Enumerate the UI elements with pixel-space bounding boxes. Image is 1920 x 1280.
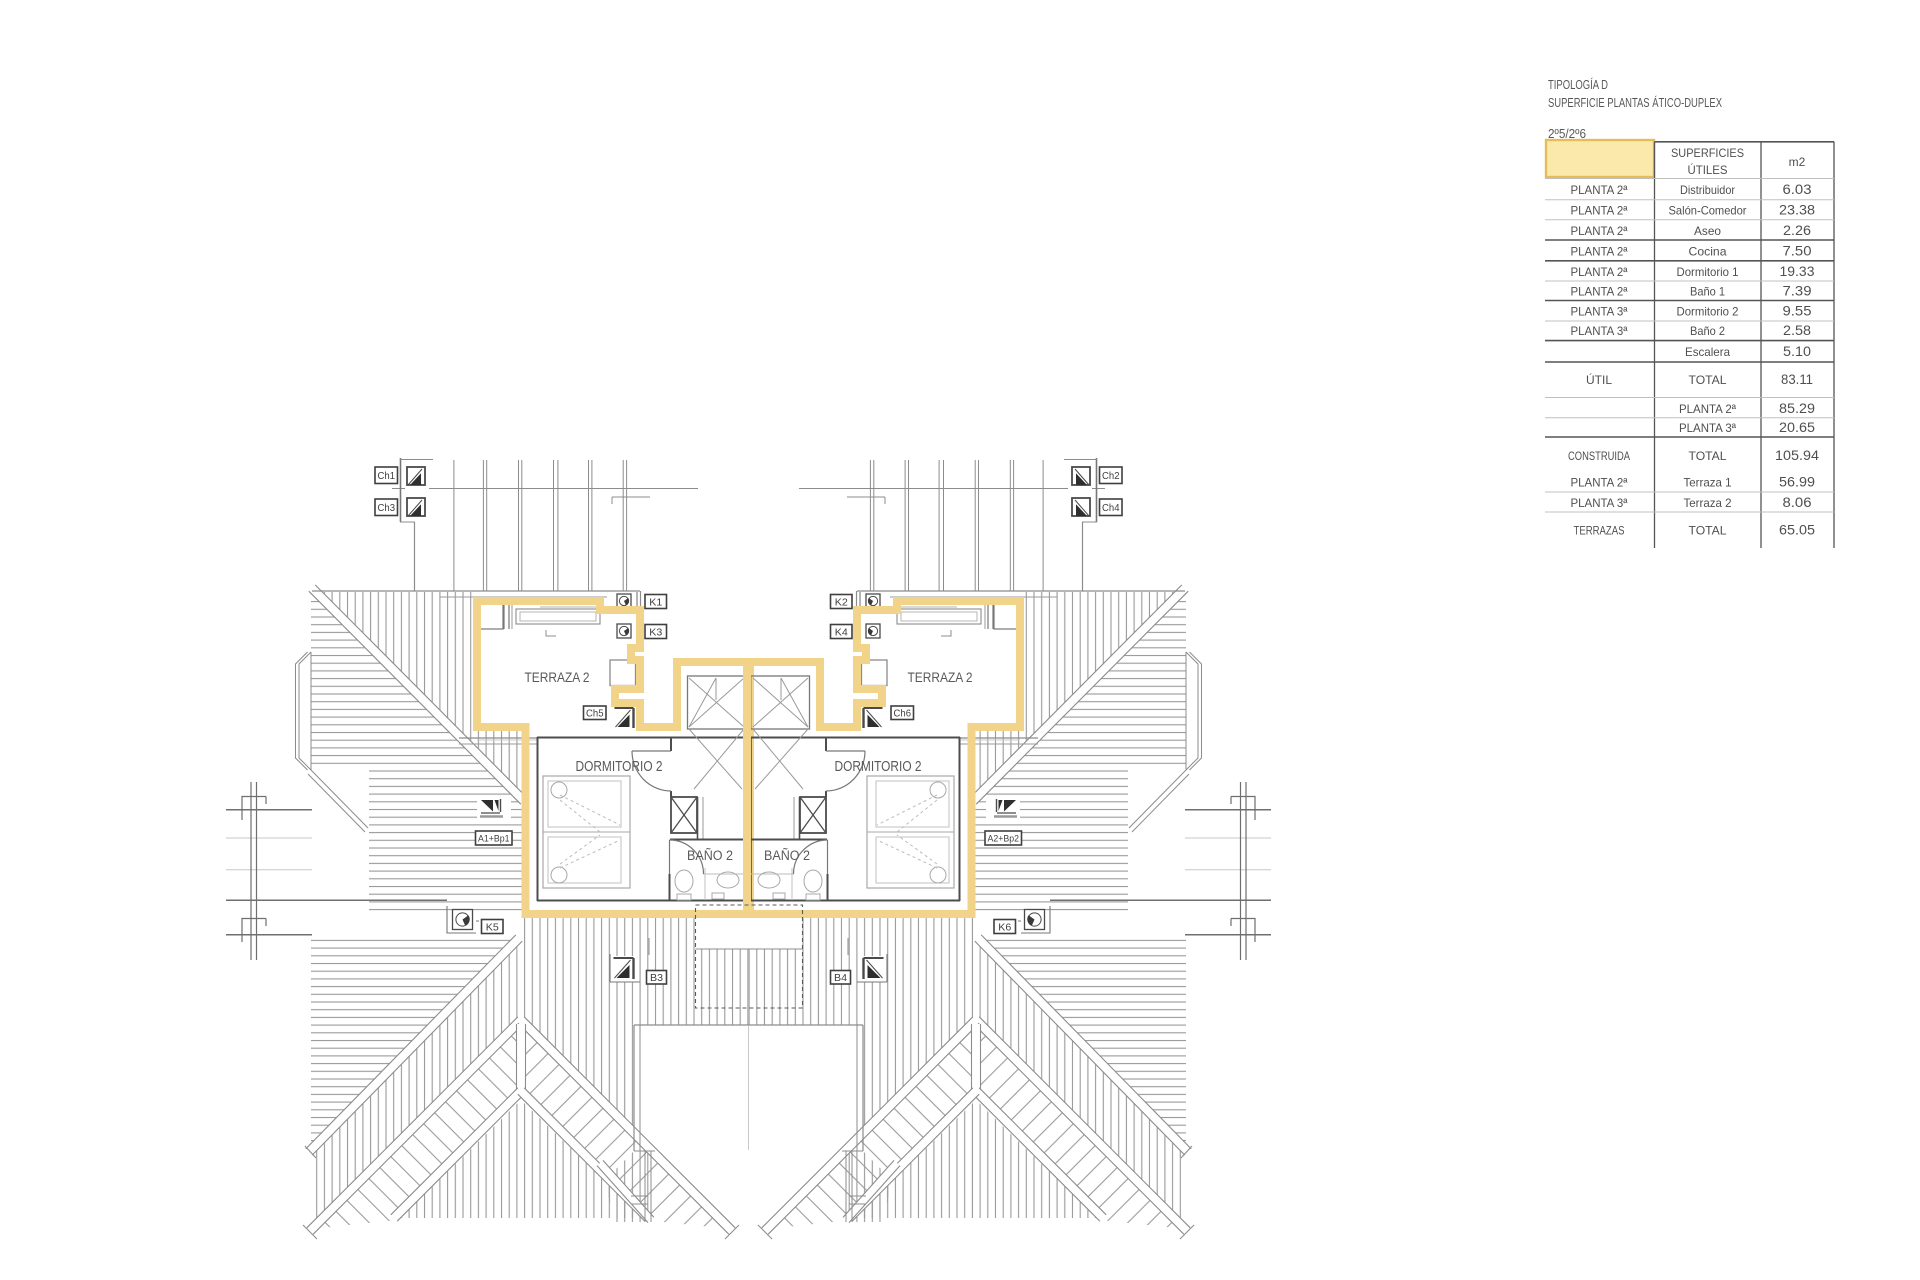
svg-text:Ch5: Ch5 — [586, 708, 604, 720]
svg-text:TERRAZA 2: TERRAZA 2 — [908, 669, 973, 685]
svg-text:PLANTA 2ª: PLANTA 2ª — [1571, 244, 1629, 258]
svg-text:DORMITORIO 2: DORMITORIO 2 — [576, 759, 663, 775]
svg-text:2.58: 2.58 — [1783, 323, 1811, 338]
svg-text:PLANTA 2ª: PLANTA 2ª — [1571, 475, 1629, 489]
svg-text:m2: m2 — [1789, 155, 1806, 169]
svg-text:105.94: 105.94 — [1775, 448, 1820, 463]
svg-text:PLANTA 2ª: PLANTA 2ª — [1679, 402, 1737, 416]
svg-text:Ch3: Ch3 — [378, 502, 396, 514]
svg-text:TOTAL: TOTAL — [1689, 373, 1727, 387]
svg-text:ÚTILES: ÚTILES — [1688, 162, 1728, 177]
svg-text:TIPOLOGÍA D: TIPOLOGÍA D — [1548, 77, 1608, 92]
svg-text:TERRAZAS: TERRAZAS — [1574, 523, 1625, 537]
svg-text:ÚTIL: ÚTIL — [1586, 372, 1612, 387]
svg-text:20.65: 20.65 — [1779, 420, 1815, 435]
svg-text:Dormitorio 1: Dormitorio 1 — [1677, 265, 1739, 279]
svg-text:Ch1: Ch1 — [378, 470, 396, 482]
svg-text:K1: K1 — [649, 596, 662, 608]
svg-text:SUPERFICIE PLANTAS ÁTICO-DUPLE: SUPERFICIE PLANTAS ÁTICO-DUPLEX — [1548, 95, 1722, 110]
svg-text:K3: K3 — [649, 626, 662, 638]
svg-text:Cocina: Cocina — [1689, 244, 1727, 258]
svg-text:Aseo: Aseo — [1694, 224, 1721, 238]
svg-text:Escalera: Escalera — [1685, 345, 1730, 359]
svg-text:Salón-Comedor: Salón-Comedor — [1669, 203, 1747, 217]
svg-text:K4: K4 — [835, 626, 848, 638]
svg-text:PLANTA 3ª: PLANTA 3ª — [1571, 496, 1629, 510]
svg-text:5.10: 5.10 — [1783, 344, 1811, 359]
svg-text:85.29: 85.29 — [1779, 401, 1815, 416]
svg-text:Dormitorio 2: Dormitorio 2 — [1677, 304, 1739, 318]
svg-text:65.05: 65.05 — [1779, 523, 1815, 538]
svg-text:PLANTA 2ª: PLANTA 2ª — [1571, 183, 1629, 197]
svg-text:6.03: 6.03 — [1783, 182, 1812, 197]
svg-text:TOTAL: TOTAL — [1689, 449, 1727, 463]
svg-text:SUPERFICIES: SUPERFICIES — [1671, 146, 1744, 160]
svg-text:56.99: 56.99 — [1779, 475, 1815, 490]
svg-text:K2: K2 — [835, 596, 848, 608]
svg-text:2.26: 2.26 — [1783, 223, 1811, 238]
svg-text:Ch2: Ch2 — [1102, 470, 1120, 482]
svg-text:Ch6: Ch6 — [894, 708, 912, 720]
svg-text:23.38: 23.38 — [1779, 203, 1815, 218]
svg-text:PLANTA 2ª: PLANTA 2ª — [1571, 284, 1629, 298]
svg-text:8.06: 8.06 — [1783, 495, 1812, 510]
svg-text:7.39: 7.39 — [1783, 284, 1812, 299]
svg-text:PLANTA 3ª: PLANTA 3ª — [1571, 324, 1629, 338]
svg-text:PLANTA 2ª: PLANTA 2ª — [1571, 265, 1629, 279]
svg-text:K6: K6 — [998, 921, 1011, 933]
svg-text:Baño 1: Baño 1 — [1690, 284, 1725, 298]
svg-text:A2+Bp2: A2+Bp2 — [988, 833, 1020, 844]
svg-text:Terraza 1: Terraza 1 — [1684, 475, 1732, 489]
svg-text:Distribuidor: Distribuidor — [1680, 183, 1735, 197]
svg-text:7.50: 7.50 — [1783, 244, 1812, 259]
svg-text:BAÑO 2: BAÑO 2 — [764, 848, 810, 863]
svg-text:PLANTA 3ª: PLANTA 3ª — [1679, 421, 1737, 435]
svg-text:DORMITORIO 2: DORMITORIO 2 — [835, 759, 922, 775]
svg-text:Ch4: Ch4 — [1102, 502, 1120, 514]
svg-text:PLANTA 3ª: PLANTA 3ª — [1571, 304, 1629, 318]
svg-text:TERRAZA 2: TERRAZA 2 — [525, 669, 590, 685]
svg-text:TOTAL: TOTAL — [1689, 523, 1727, 537]
svg-text:PLANTA 2ª: PLANTA 2ª — [1571, 224, 1629, 238]
svg-text:B3: B3 — [650, 972, 663, 984]
svg-text:19.33: 19.33 — [1780, 264, 1815, 279]
svg-text:A1+Bp1: A1+Bp1 — [478, 833, 510, 844]
svg-text:PLANTA 2ª: PLANTA 2ª — [1571, 203, 1629, 217]
svg-text:83.11: 83.11 — [1781, 372, 1813, 387]
svg-text:Baño 2: Baño 2 — [1690, 324, 1725, 338]
svg-text:BAÑO 2: BAÑO 2 — [687, 848, 733, 863]
svg-text:B4: B4 — [834, 972, 847, 984]
svg-text:9.55: 9.55 — [1783, 304, 1812, 319]
svg-text:Terraza 2: Terraza 2 — [1684, 496, 1732, 510]
svg-text:K5: K5 — [486, 921, 499, 933]
svg-text:CONSTRUIDA: CONSTRUIDA — [1568, 449, 1630, 463]
